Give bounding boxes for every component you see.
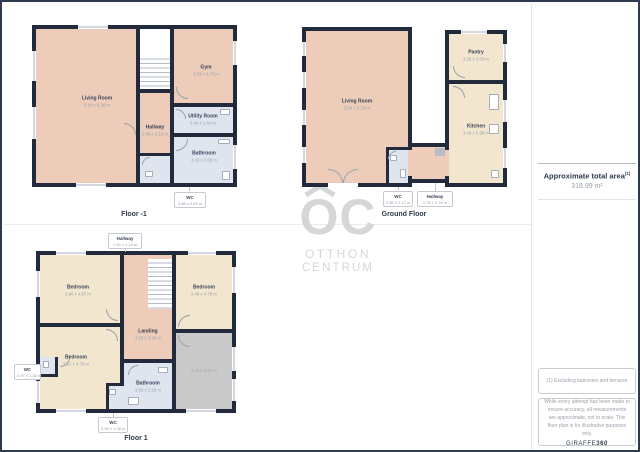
panel-top-rule	[538, 163, 636, 164]
window	[56, 251, 86, 255]
wc-tag: WC 0.97 x 1.38 m	[14, 364, 41, 380]
brand-name: GIRAFFE	[566, 441, 596, 447]
toilet-fixture	[145, 171, 153, 177]
wc-tag: WC 0.85 x 0.85 m	[174, 192, 206, 208]
window	[503, 100, 507, 122]
floorplan-sheet: OC OTTHON CENTRUM Living Room 5.84 x 6.3…	[0, 0, 640, 452]
logo-line1: OTTHON	[298, 247, 378, 261]
room-dims: 0.85 x 0.85 m	[177, 201, 203, 206]
floorplan-ground-right: Pantry 3.26 x 3.03 m Kitchen 3.44 x 5.58…	[445, 30, 507, 187]
wall-opening	[408, 150, 412, 176]
window	[36, 381, 40, 403]
floor-label: Ground Floor	[382, 211, 427, 218]
room-name: Bedroom	[65, 285, 91, 292]
room-name: Bathroom	[135, 381, 161, 388]
window	[56, 409, 86, 413]
window	[232, 347, 236, 371]
room-name: Utility Room	[188, 114, 217, 121]
window	[232, 379, 236, 401]
sink-fixture	[489, 124, 499, 134]
stairs	[148, 259, 172, 309]
window	[76, 183, 106, 187]
room-name: Gym	[193, 65, 219, 72]
room-label: Living Room 5.54 x 5.73 m	[342, 99, 372, 112]
room-dims: 5.54 x 5.73 m	[342, 105, 372, 111]
room-name: Pantry	[463, 50, 489, 57]
floorplan-floor-1: Bedroom 3.96 x 4.87 m Bedroom 3.48 x 4.7…	[36, 251, 236, 413]
window	[233, 41, 237, 65]
room-dims: 5.84 x 6.39 m	[82, 102, 112, 108]
disclaimer-text: While every attempt has been made to ens…	[539, 398, 635, 438]
room-dims: 3.44 x 1.64 m	[188, 120, 217, 126]
horizontal-divider	[4, 224, 531, 225]
room-label: Bedroom 3.96 x 4.87 m	[65, 285, 91, 298]
window	[302, 42, 306, 56]
room-name: Landing	[135, 329, 161, 336]
window	[233, 145, 237, 169]
room-label: Living Room 5.84 x 6.39 m	[82, 96, 112, 109]
tub-fixture	[128, 397, 139, 405]
hallway-tag: Hallway 1.78 x 2.78 m	[417, 191, 453, 207]
logo-monogram: OC	[298, 192, 378, 242]
room-label: Gym 3.04 x 4.73 m	[193, 65, 219, 78]
room-dims: 1.78 x 2.78 m	[420, 200, 450, 205]
room-dims: 3.48 x 4.79 m	[191, 291, 217, 297]
room-name: Living Room	[82, 96, 112, 103]
floorplan-ground-left: Living Room 5.54 x 5.73 m	[302, 27, 412, 187]
window	[32, 51, 36, 81]
room-label: Pantry 3.26 x 3.03 m	[463, 50, 489, 63]
room-label: Hallway 2.99 x 3.18 m	[142, 125, 168, 138]
sink-fixture	[400, 169, 406, 178]
room-dims: 3.62 x 4.79 m	[63, 361, 89, 367]
disclaimer-box: While every attempt has been made to ens…	[538, 398, 636, 446]
panel-bottom-rule	[538, 199, 636, 200]
room-name: Bedroom	[191, 285, 217, 292]
room-label: Bathroom 3.42 x 3.09 m	[191, 151, 217, 164]
room-dims: 3.42 x 3.09 m	[191, 157, 217, 163]
room-dims: 0.95 x 1.38 m	[101, 426, 125, 431]
room-label: Bathroom 3.39 x 2.58 m	[135, 381, 161, 394]
wall-opening	[445, 150, 449, 176]
room-label: Landing 4.56 x 3.80 m	[135, 329, 161, 342]
window	[186, 409, 216, 413]
giraffe360-logo: GIRAFFE360	[566, 441, 608, 447]
leader-line	[398, 187, 399, 190]
toilet-fixture	[109, 389, 116, 395]
room-dims: 1.09 x 1.14 m	[111, 242, 139, 247]
window	[232, 267, 236, 293]
floor-label: Floor -1	[121, 211, 147, 218]
sink-fixture	[158, 367, 168, 373]
window	[78, 25, 108, 29]
room-dims: 3.44 x 4.81 m	[191, 368, 217, 374]
counter-fixture	[489, 94, 499, 110]
appliance-fixture	[220, 109, 230, 115]
total-area-value: 318.99 m²	[538, 183, 636, 190]
window	[503, 148, 507, 168]
window	[36, 271, 40, 297]
window	[302, 110, 306, 125]
logo-line2: CENTRUM	[298, 262, 378, 274]
window	[461, 30, 487, 34]
footnote-box: (1) Excluding balconies and terraces	[538, 368, 636, 394]
room-dims: 3.26 x 3.03 m	[463, 56, 489, 62]
step	[435, 148, 445, 156]
room-dims: 3.44 x 5.58 m	[463, 130, 489, 136]
leader-line	[435, 183, 436, 191]
sink-fixture	[218, 139, 230, 144]
toilet-fixture	[43, 361, 49, 368]
window	[302, 147, 306, 163]
floorplan-floor-minus-1: Living Room 5.84 x 6.39 m Gym 3.04 x 4.7…	[32, 25, 237, 187]
window	[503, 44, 507, 62]
appliance-fixture	[491, 170, 499, 178]
room-label: Bedroom 3.62 x 4.79 m	[63, 355, 89, 368]
room-label: Utility Room 3.44 x 1.64 m	[188, 114, 217, 127]
room-dims: 0.97 x 1.38 m	[17, 373, 38, 378]
footnote-text: (1) Excluding balconies and terraces	[542, 377, 633, 385]
room-name: Bedroom	[63, 355, 89, 362]
room-name: Kitchen	[463, 124, 489, 131]
total-area-footnote-ref: (1)	[625, 171, 631, 176]
window	[188, 251, 216, 255]
brand-suffix: 360	[596, 441, 608, 447]
room-label: Kitchen 3.44 x 5.58 m	[463, 124, 489, 137]
toilet-fixture	[222, 171, 230, 180]
room-name: Living Room	[342, 99, 372, 106]
wc-tag: WC 0.95 x 1.38 m	[98, 417, 128, 433]
room-dims: 4.56 x 3.80 m	[135, 335, 161, 341]
wc-tag: WC 0.85 x 2.12 m	[383, 191, 413, 207]
toilet-fixture	[390, 155, 397, 161]
window	[302, 72, 306, 88]
room-dims: 2.99 x 3.18 m	[142, 131, 168, 137]
hallway-tag: Hallway 1.09 x 1.14 m	[108, 233, 142, 249]
room-dims: 0.85 x 2.12 m	[386, 200, 410, 205]
room-name: Bathroom	[191, 151, 217, 158]
stairs	[140, 55, 170, 89]
entrance-opening	[328, 183, 358, 187]
room-name: Hallway	[142, 125, 168, 132]
vertical-divider	[531, 4, 532, 452]
room-wc-bottom	[106, 383, 124, 409]
room-dims: 3.04 x 4.73 m	[193, 71, 219, 77]
window	[32, 107, 36, 139]
room-label: Bedroom 3.48 x 4.79 m	[191, 285, 217, 298]
total-area-title-text: Approximate total area	[544, 172, 625, 181]
leader-line	[189, 187, 190, 191]
floor-label: Floor 1	[124, 435, 147, 442]
room-dims: 3.39 x 2.58 m	[135, 387, 161, 393]
total-area-title: Approximate total area(1)	[538, 171, 636, 181]
room-label: 3.44 x 4.81 m	[191, 368, 217, 374]
room-dims: 3.96 x 4.87 m	[65, 291, 91, 297]
